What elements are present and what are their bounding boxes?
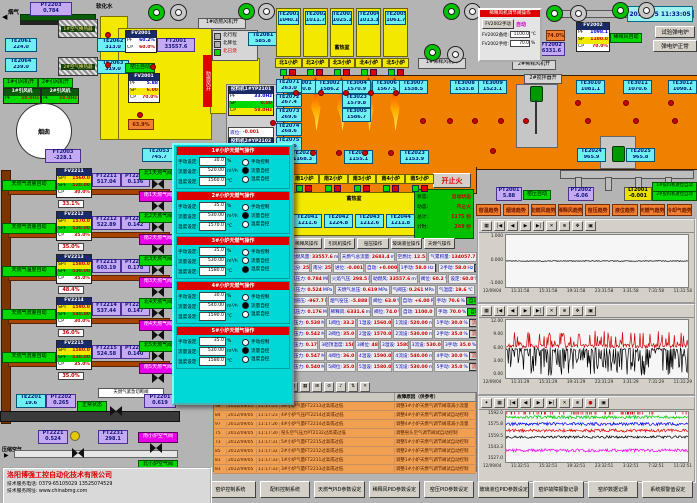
- chart-toolbar-icon[interactable]: ▶: [533, 398, 544, 408]
- port-on-indicator-icon: [383, 185, 390, 192]
- sensor-dot-icon: [668, 100, 674, 106]
- operation-button[interactable]: 引风机操作: [324, 238, 355, 249]
- ft2003-readout: FT2003-228.1: [45, 149, 81, 163]
- sensor-dot-icon: [368, 90, 374, 96]
- section-title: 2#小炉天燃气操作: [177, 192, 289, 200]
- id-fan2-status: 2#引风机开: [38, 78, 73, 88]
- alarm-row[interactable]: 73 2012/09/05 11:17:31 5#小炉气量FT2215过高或过低…: [214, 438, 476, 447]
- alarm-toolbar-icon[interactable]: ✕: [360, 382, 370, 392]
- alarm-row[interactable]: 97 2012/09/05 11:17:26 4#小炉气量FT2214过高或过低…: [214, 420, 476, 429]
- trend-button[interactable]: 冷却气趋势: [667, 204, 692, 216]
- chamber-temp-readout: TE20041013.3: [358, 11, 379, 25]
- gas-loop: 天燃气流量自动 FV2211 SPT1560.0 SPF520.00 CP30.…: [0, 168, 178, 211]
- x-tick-label: 19:31:29: [567, 379, 585, 384]
- chart-toolbar: ▦|◀◀▶▶|✕⊕✥▣: [479, 305, 694, 318]
- sensor-dot-icon: [575, 100, 581, 106]
- chart-toolbar-icon[interactable]: ✦: [481, 398, 492, 408]
- pt2202-readout: PT22020.265: [46, 394, 76, 408]
- port-off-indicator-icon: [421, 185, 428, 192]
- port-indicators: [412, 185, 428, 192]
- bottom-temp-readout: TE2025965.8: [626, 148, 655, 162]
- chart-toolbar-icon[interactable]: ▶|: [533, 306, 544, 316]
- port-indicators: [354, 185, 370, 192]
- booster-test-button[interactable]: 试验弹电炉: [655, 26, 695, 38]
- port-name-label: 北4小炉: [355, 58, 382, 68]
- ft2231-readout: FT2231298.1: [98, 430, 128, 444]
- control-mode-radio[interactable]: 流量自控: [242, 212, 288, 219]
- fan-icon: [424, 44, 441, 61]
- setpoint-field[interactable]: 530.00: [199, 347, 226, 356]
- setpoint-row: 流量设定:540.00m³/h: [178, 302, 240, 311]
- setpoint-field[interactable]: 530.00: [199, 212, 226, 221]
- setpoint-field[interactable]: 35.0: [199, 202, 226, 211]
- port-name-label: 南1小炉: [290, 174, 319, 184]
- crown-temp-readout: TE30051586.7: [342, 108, 371, 122]
- x-tick-label: 7:31:29: [648, 379, 664, 384]
- booster-normal-button[interactable]: 弹电炉正常: [653, 40, 697, 52]
- sensor-dot-icon: [362, 150, 368, 156]
- port-indicators: [307, 69, 323, 76]
- control-mode-radio[interactable]: 温度自控: [242, 311, 288, 318]
- blower-status-label: 1#助燃风机开: [198, 18, 246, 29]
- alarm-toolbar-icon[interactable]: ▦: [300, 382, 310, 392]
- regenerator-label: 蓄热室: [292, 195, 416, 202]
- sensor-dot-icon: [105, 32, 111, 38]
- metric-cell: 4压力:0.547MPa: [289, 351, 325, 361]
- chart-toolbar: ▦|◀◀▶▶|✕⊕✥▣: [479, 220, 694, 233]
- port-indicators: [334, 69, 350, 76]
- x-tick-label: 23:32:51: [595, 463, 613, 468]
- alarm-row[interactable]: 81 2012/09/05 11:17:33 1#小炉气量FT2211过高或过低…: [214, 456, 476, 465]
- setpoint-row: 温度设定:1560.0℃: [178, 177, 240, 186]
- control-mode-radio[interactable]: 手动控制: [242, 204, 288, 211]
- port-on-indicator-icon: [412, 185, 419, 192]
- alarm-row[interactable]: 75 2012/09/05 11:17:30 窑头空气压力PT2132过高或过低…: [214, 429, 476, 438]
- x-tick-label: 15:31:58: [539, 288, 557, 293]
- metric-cell: 火焰气压:298.5Pa: [330, 274, 370, 284]
- neck-temp-readout: TE2074268.6: [276, 123, 302, 137]
- port-on-indicator-icon: [388, 69, 395, 76]
- metric-cell: 自动:+0.000mm: [365, 263, 398, 273]
- neck-temp-readout: TE2072267.4: [276, 94, 302, 108]
- fan-icon: [570, 5, 587, 22]
- alarm-row[interactable]: 83 2012/09/05 11:17:33 3#小炉气量FT2213过高或过低…: [214, 465, 476, 474]
- south-port: 南1小炉: [291, 174, 318, 190]
- ft2002-readout: FT20026331.6: [538, 42, 565, 56]
- metric-cell: 烟道压:-967.7Pa: [289, 296, 327, 306]
- fv2002-sp-field[interactable]: 1100.0: [510, 31, 530, 38]
- x-tick-label: 12/09/04: [483, 288, 501, 293]
- loop-mode-label: 天燃气流量自动: [2, 309, 56, 320]
- setpoint-row: 流量设定:530.00m³/h: [178, 212, 240, 221]
- chart-toolbar-icon[interactable]: ▦: [481, 221, 492, 231]
- metric-cell: 4流设:540.00m³/h: [393, 351, 433, 361]
- smallfurnace-gas-dialog: 1#小炉天燃气操作 手动设定:30.0% 流量设定:520.00m³/h 温度设…: [172, 143, 294, 405]
- loop-mode-label: 天燃气流量自动: [2, 223, 56, 234]
- lt2001-readout: LT2001-0.001: [624, 187, 652, 201]
- scada-furnace-screen: 烟气 ◀ 软化水 PT2203 0.784 TE2061224.0 TE2064…: [0, 0, 697, 503]
- metrics-row: 烟道压:-967.7Pa 烟气窑压:-5.888Pa 阀位:63.9% 自动:+…: [289, 296, 477, 306]
- dialog-mode-row: FV2002手动 自动: [482, 19, 538, 29]
- metric-cell: 3碹顶温度:1586.7℃: [319, 340, 354, 350]
- port-name-label: 北3小炉: [329, 58, 356, 68]
- dialog-sp-row: FV2002备给: 1100.0 ℃: [482, 31, 538, 38]
- port-name-label: 南2小炉: [319, 174, 348, 184]
- x-tick-label: 11:31:58: [674, 288, 692, 293]
- loop-mode-label: 天燃气流量自动: [2, 352, 56, 363]
- fv2002-manual-button[interactable]: FV2002手动: [482, 19, 514, 29]
- port-indicators: [280, 69, 296, 76]
- metric-cell: 4温设:1590.0℃: [357, 351, 393, 361]
- radio-icon: [242, 347, 249, 354]
- loop-valve-pos: 35.0%: [58, 243, 84, 251]
- gas-pid-section: 2#小炉天燃气操作 手动设定:35.0% 流量设定:530.00m³/h 温度设…: [176, 191, 290, 234]
- chart-toolbar-icon[interactable]: ◀: [507, 221, 518, 231]
- ft2001-readout: FT200133557.6: [157, 38, 195, 52]
- radio-icon: [242, 176, 249, 183]
- operation-button[interactable]: 稀释风操作: [291, 238, 322, 249]
- sensor-dot-icon: [420, 118, 426, 124]
- chart-toolbar-icon[interactable]: ▶: [520, 306, 531, 316]
- metric-cell: 2手动:35.0%流控: [434, 329, 477, 339]
- chart-toolbar-icon[interactable]: |◀: [507, 398, 518, 408]
- heat-exchanger-1: 1#空气换热器: [58, 19, 98, 38]
- loop-flow-readout: FT2212522.89: [92, 216, 121, 230]
- port-name-label: 北2小炉: [302, 58, 329, 68]
- fv2002-out-field[interactable]: 70.0: [510, 40, 530, 47]
- legend-state-icon: [214, 33, 221, 40]
- setpoint-field[interactable]: 1590.0: [199, 312, 226, 321]
- control-mode-radio[interactable]: 流量自控: [242, 302, 288, 309]
- operation-button[interactable]: 玻璃液位操作: [391, 238, 422, 249]
- fv2002-mode-label: 自动: [516, 21, 526, 28]
- chart-toolbar: ✦▦|◀◀▶▶|✕⊕●▣: [479, 397, 694, 410]
- setpoint-row: 温度设定:1570.0℃: [178, 222, 240, 231]
- trend-button[interactable]: 助燃风趋势: [531, 204, 556, 216]
- valve-icon: [152, 244, 164, 254]
- chart-toolbar-icon[interactable]: ▦: [481, 306, 492, 316]
- sensor-dot-icon: [393, 90, 399, 96]
- sensor-dot-icon: [623, 100, 629, 106]
- y-tick-label: 3.00: [493, 359, 503, 364]
- chart-toolbar-icon[interactable]: ●: [585, 398, 596, 408]
- trend-button[interactable]: 稀释风趋势: [558, 204, 583, 216]
- metrics-row: 助燃风量:33557.6m³/h 天燃气总流量:2683.4m³/h 空燃比:1…: [289, 252, 477, 262]
- legend-state-icon: [214, 49, 221, 56]
- port-indicators: [296, 185, 312, 192]
- sensor-dot-icon: [270, 120, 276, 126]
- loop-flow-readout: FT2214537.44: [92, 302, 121, 316]
- radio-icon: [242, 221, 249, 228]
- section-title: 1#小炉天燃气操作: [177, 147, 289, 155]
- south-ports-row: 南1小炉 南2小炉 南3小炉 南4小炉 南5小炉: [291, 174, 433, 190]
- chart-toolbar-icon[interactable]: ▶|: [533, 221, 544, 231]
- fan-icon: [612, 2, 629, 19]
- radio-icon: [242, 311, 249, 318]
- x-tick-label: 7:32:51: [648, 463, 664, 468]
- esd-valve-icon: [110, 406, 122, 416]
- crown-temp-readout: TE30081533.8: [450, 80, 479, 94]
- metric-cell: 南分:25秒: [311, 263, 332, 273]
- x-tick-label: 23:31:29: [595, 379, 613, 384]
- metric-cell: 2温设:1570.0℃: [357, 329, 393, 339]
- valve-icon: [152, 287, 164, 297]
- chart-toolbar-icon[interactable]: ✥: [572, 306, 583, 316]
- trend-button[interactable]: 液位趋势: [612, 204, 637, 216]
- setpoint-field[interactable]: 1580.0: [199, 357, 226, 366]
- loop-valve-pos: 35.0%: [58, 372, 84, 380]
- air-valve-icon: [72, 448, 84, 458]
- chart-toolbar-icon[interactable]: ◀: [520, 398, 531, 408]
- metric-cell: 3阀位:48.4%: [355, 340, 379, 350]
- chart-toolbar-icon[interactable]: |◀: [494, 306, 505, 316]
- control-mode-radio[interactable]: 手动控制: [242, 159, 288, 166]
- setpoint-row: 手动设定:35.0%: [178, 202, 240, 211]
- control-mode-radio[interactable]: 温度自控: [242, 176, 288, 183]
- chart-toolbar-icon[interactable]: ▣: [598, 398, 609, 408]
- pt2001-readout: PT20015.88: [496, 187, 522, 201]
- setpoint-field[interactable]: 30.0: [199, 292, 226, 301]
- metric-cell: 3温设:1580.0℃: [380, 340, 409, 350]
- loop-mode-label: 天燃气温度自动: [2, 266, 56, 277]
- chart-toolbar-icon[interactable]: ▣: [585, 306, 596, 316]
- gas-loop: 天燃气流量自动 FV2214 SPT1590.0 SPF540.00 CP30.…: [0, 297, 178, 340]
- chart-toolbar-icon[interactable]: ⊕: [559, 306, 570, 316]
- nav-button[interactable]: 系统报警值设定: [642, 481, 693, 498]
- x-tick-label: 11:31:29: [674, 379, 692, 384]
- valve-icon: [152, 265, 164, 275]
- dialog-title: 稀释风机调节阀操作: [480, 10, 540, 17]
- loop-flow-readout: FT2211517.04: [92, 173, 121, 187]
- x-tick-label: 19:31:58: [567, 288, 585, 293]
- control-mode-radio[interactable]: 手动控制: [242, 294, 288, 301]
- sensor-dot-icon: [105, 62, 111, 68]
- control-mode-radio[interactable]: 手动控制: [242, 249, 288, 256]
- y-tick-label: -1.000: [489, 281, 503, 286]
- loop-controller-panel: FV2215 SPT1580.0 SPF530.00 CP35.0%: [56, 340, 92, 370]
- stirrer-shaft: [535, 100, 537, 134]
- chart-toolbar-icon[interactable]: ▦: [494, 398, 505, 408]
- setpoint-row: 手动设定:30.0%: [178, 157, 240, 166]
- trend-plot[interactable]: [505, 319, 689, 379]
- control-mode-radio[interactable]: 流量自控: [242, 347, 288, 354]
- y-tick-label: 1559.5: [488, 434, 503, 439]
- x-tick-label: 12/09/04: [483, 379, 501, 384]
- alarm-toolbar-icon[interactable]: ⊘: [324, 382, 334, 392]
- sensor-dot-icon: [318, 90, 324, 96]
- y-tick-label: 1543.3: [488, 445, 503, 450]
- nav-button[interactable]: 稀释风PID参数设定: [369, 481, 420, 498]
- chart-toolbar-icon[interactable]: ⊕: [559, 221, 570, 231]
- control-mode-radio[interactable]: 温度自控: [242, 221, 288, 228]
- loop-controller-panel: FV2211 SPT1560.0 SPF520.00 CP30.0%: [56, 168, 92, 198]
- trend-plot[interactable]: [505, 234, 689, 288]
- chart-toolbar-icon[interactable]: ◀: [507, 306, 518, 316]
- radio-icon: [242, 167, 249, 174]
- radio-icon: [242, 294, 249, 301]
- control-mode-radio[interactable]: 流量自控: [242, 167, 288, 174]
- sensor-dot-icon: [343, 90, 349, 96]
- section-title: 4#小炉天燃气操作: [177, 282, 289, 290]
- trend-button[interactable]: 窑温趋势: [476, 204, 501, 216]
- control-mode-radio[interactable]: 温度自控: [242, 266, 288, 273]
- setpoint-field[interactable]: 1580.0: [199, 267, 226, 276]
- metric-cell: 手动:70.6%自动: [435, 296, 477, 306]
- nav-button[interactable]: 窑压PID参数设定: [424, 481, 475, 498]
- gas-pid-section: 1#小炉天燃气操作 手动设定:30.0% 流量设定:520.00m³/h 温度设…: [176, 146, 290, 189]
- port-on-indicator-icon: [325, 185, 332, 192]
- datetime-display: 2012/9/5 11:33:05: [627, 6, 693, 22]
- setpoint-field[interactable]: 520.00: [199, 167, 226, 176]
- nav-button[interactable]: 窑炉控制系统: [205, 481, 256, 498]
- alarm-row[interactable]: 85 2012/09/05 11:17:32 2#小炉气量FT2212过高或过低…: [214, 447, 476, 456]
- metrics-row: 1压力:0.538MPa 1阀位:33.2% 1温设:1560.0℃ 1流设:5…: [289, 318, 477, 328]
- nav-button[interactable]: 窑炉数据记录: [588, 481, 639, 498]
- status-row: 总计:1175 秒: [417, 211, 471, 221]
- chamber-temp-readout: TE20411211.6: [293, 214, 322, 228]
- x-tick-label: 3:31:29: [623, 379, 639, 384]
- north-port: 北1小炉: [276, 58, 301, 74]
- alarm-toolbar-icon[interactable]: ⊞: [312, 382, 322, 392]
- port-indicators: [361, 69, 377, 76]
- trend-button[interactable]: 窑压趋势: [585, 204, 610, 216]
- metric-cell: 风压力:0.176MPa: [289, 307, 328, 317]
- port-off-indicator-icon: [370, 69, 377, 76]
- fire-stop-button[interactable]: 开止火: [433, 173, 471, 188]
- crown-temp-readout: TE30231579.8: [342, 94, 371, 108]
- y-tick-label: 0.000: [491, 258, 503, 263]
- chart-toolbar-icon[interactable]: ✥: [572, 221, 583, 231]
- north-port: 北4小炉: [356, 58, 381, 74]
- control-mode-radio[interactable]: 温度自控: [242, 356, 288, 363]
- setpoint-field[interactable]: 530.00: [199, 257, 226, 266]
- charger2-auto-label: 2#投料机进位自动: [652, 191, 697, 201]
- alarm-row[interactable]: 84 2012/09/05 11:17:23 4#小炉气压PT2214过高或过低…: [214, 411, 476, 420]
- y-tick-label: 1527.0: [488, 456, 503, 461]
- chart-toolbar-icon[interactable]: ▣: [585, 221, 596, 231]
- status-row: 状态:自动状态: [417, 191, 471, 201]
- setpoint-field[interactable]: 30.0: [199, 157, 226, 166]
- y-tick-label: 0.00: [493, 372, 503, 377]
- nav-button[interactable]: 玻璃液位PID参数设定: [478, 481, 529, 498]
- nav-button[interactable]: 天燃气PID参数设定: [314, 481, 365, 498]
- x-tick-label: 11:32:51: [511, 463, 529, 468]
- valve-icon: [152, 201, 164, 211]
- radio-icon: [242, 249, 249, 256]
- fan-icon: [638, 2, 655, 19]
- south-port: 南3小炉: [349, 174, 376, 190]
- metric-cell: 1手动:58.0Hz自动: [399, 263, 438, 273]
- alarm-toolbar-icon[interactable]: ⇅: [348, 382, 358, 392]
- x-tick-label: 7:31:58: [648, 288, 664, 293]
- chamber-temp-readout: TE20021011.7: [305, 11, 326, 25]
- crown-temp-readout: TE30091523.1: [478, 80, 507, 94]
- chart-toolbar-icon[interactable]: ✕: [546, 306, 557, 316]
- south-port: 南2小炉: [320, 174, 347, 190]
- setpoint-field[interactable]: 35.0: [199, 247, 226, 256]
- nav-button[interactable]: 窑炉故障报警记录: [533, 481, 584, 498]
- port-off-indicator-icon: [363, 185, 370, 192]
- setpoint-field[interactable]: 35.0: [199, 337, 226, 346]
- trend-button[interactable]: 烟道趋势: [503, 204, 528, 216]
- gas-loop: 天燃气流量自动 FV2215 SPT1580.0 SPF530.00 CP35.…: [0, 340, 178, 383]
- setpoint-field[interactable]: 1570.0: [199, 222, 226, 231]
- sensor-dot-icon: [137, 112, 143, 118]
- chamber-temp-readout: TE20051061.7: [385, 11, 406, 25]
- company-name: 洛阳博强工控自动化技术有限公司: [7, 470, 207, 480]
- sensor-dot-icon: [585, 118, 591, 124]
- pressure-trend-chart: ▦|◀◀▶▶|✕⊕✥▣ 12.009.006.003.000.00 12/09/…: [477, 303, 696, 396]
- port-on-indicator-icon: [280, 69, 287, 76]
- fan-icon: [258, 3, 275, 20]
- port-off-indicator-icon: [397, 69, 404, 76]
- metric-cell: 气阀压:0.261MPa: [391, 285, 436, 295]
- alarm-toolbar-icon[interactable]: ♪: [336, 382, 346, 392]
- metric-cell: 2手动:58.0Hz自动: [438, 263, 477, 273]
- north-port: 北2小炉: [303, 58, 328, 74]
- sensor-dot-icon: [310, 150, 316, 156]
- metric-cell: 气压力:0.524MPa: [289, 285, 334, 295]
- setpoint-field[interactable]: 1560.0: [199, 177, 226, 186]
- port-on-indicator-icon: [334, 69, 341, 76]
- y-tick-label: 9.00: [493, 332, 503, 337]
- bottom-temp-readout: TE20221155.1: [344, 150, 373, 164]
- operation-button[interactable]: 天燃气操作: [424, 238, 455, 249]
- metric-cell: 自动:1100.0℃: [401, 307, 435, 317]
- port-name-label: 北1小炉: [275, 58, 302, 68]
- metric-cell: 1阀位:33.2%: [326, 318, 356, 328]
- crown-temp-readout: TE30111070.6: [623, 80, 652, 94]
- control-mode-radio[interactable]: 手动控制: [242, 339, 288, 346]
- metric-cell: 空燃比:12.5:1: [396, 252, 428, 262]
- trend-button[interactable]: 天燃气趋势: [640, 204, 665, 216]
- metrics-row: 气压力:0.524MPa 天燃气总压:0.619MPa 气阀压:0.261MPa…: [289, 285, 477, 295]
- sensor-dot-icon: [472, 118, 478, 124]
- navigation-buttons: 窑炉控制系统配料控制系统天燃气PID参数设定稀释风PID参数设定窑压PID参数设…: [205, 481, 693, 498]
- chart-toolbar-icon[interactable]: ✕: [559, 398, 570, 408]
- crown-temp-readout: TE30121098.1: [668, 80, 697, 94]
- chart-toolbar-icon[interactable]: ▶|: [546, 398, 557, 408]
- company-info: 洛阳博强工控自动化技术有限公司 技术服务电话: 0379-65105029 13…: [2, 467, 212, 503]
- metric-cell: 进位:-0.001mm: [333, 263, 364, 273]
- metric-cell: 天燃气总压:0.619MPa: [335, 285, 389, 295]
- metric-cell: 1手动:30.0%流控: [434, 318, 477, 328]
- fv2001-pressure-panel: FV2001 PF5.88 SP6.00 CP70.0%: [128, 73, 160, 103]
- trend-plot[interactable]: [505, 411, 689, 463]
- chart-toolbar-icon[interactable]: ▶: [520, 221, 531, 231]
- loop-controller-panel: FV2214 SPT1590.0 SPF540.00 CP30.0%: [56, 297, 92, 327]
- te2061-readout: TE2061224.0: [5, 38, 37, 52]
- id-fan1-status: 1#引风机开: [3, 78, 38, 88]
- operation-button[interactable]: 窑压操作: [357, 238, 388, 249]
- company-phone: 技术服务电话: 0379-65105029 13525074529: [7, 480, 207, 487]
- soft-water-label: 软化水: [96, 2, 113, 10]
- chart-toolbar-icon[interactable]: ⊕: [572, 398, 583, 408]
- gas-pid-section: 3#小炉天燃气操作 手动设定:35.0% 流量设定:530.00m³/h 温度设…: [176, 236, 290, 279]
- loop-flow-readout: FT2215524.58: [92, 345, 121, 359]
- setpoint-field[interactable]: 540.00: [199, 302, 226, 311]
- metrics-row: 2压力:0.542MPa 2阀位:35.0% 2温设:1570.0℃ 2流设:5…: [289, 329, 477, 339]
- nav-button[interactable]: 配料控制系统: [260, 481, 311, 498]
- chart-toolbar-icon[interactable]: ✕: [546, 221, 557, 231]
- control-mode-radio[interactable]: 流量自控: [242, 257, 288, 264]
- fan-icon: [238, 3, 255, 20]
- loop-controller-panel: FV2212 SPT1570.0 SPF530.00 CP35.0%: [56, 211, 92, 241]
- chart-toolbar-icon[interactable]: |◀: [494, 221, 505, 231]
- radio-icon: [242, 339, 249, 346]
- x-tick-label: 11:31:29: [511, 379, 529, 384]
- x-tick-label: 23:31:58: [595, 288, 613, 293]
